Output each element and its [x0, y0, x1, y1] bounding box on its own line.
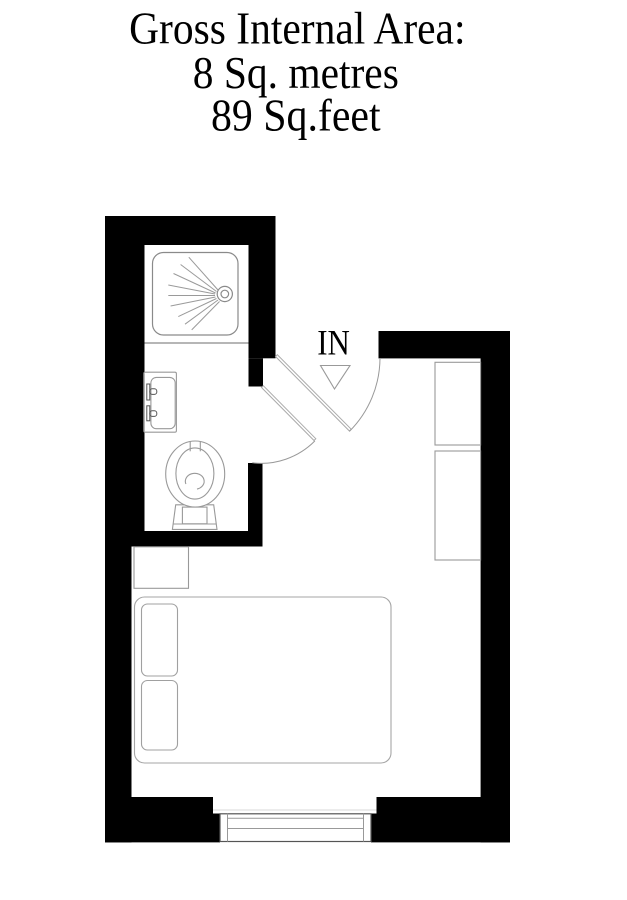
svg-text:89 Sq.feet: 89 Sq.feet — [211, 89, 381, 140]
svg-text:IN: IN — [317, 323, 350, 363]
